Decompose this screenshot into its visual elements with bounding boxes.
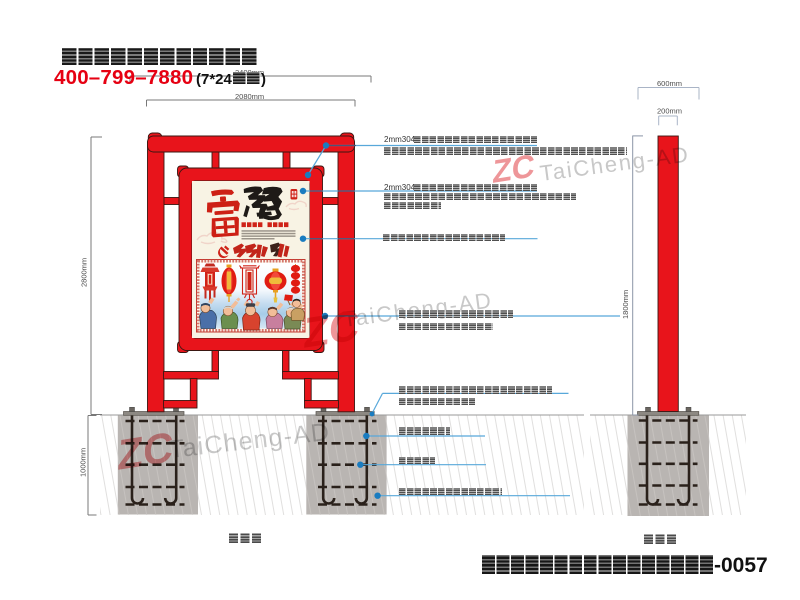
svg-text:2800mm: 2800mm bbox=[80, 258, 89, 287]
svg-text:1000mm: 1000mm bbox=[79, 448, 88, 477]
svg-text:600mm: 600mm bbox=[657, 79, 682, 88]
svg-text:2080mm: 2080mm bbox=[235, 92, 264, 101]
svg-text:ZC: ZC bbox=[117, 423, 175, 479]
svg-text:ZC: ZC bbox=[303, 301, 361, 357]
svg-text:200mm: 200mm bbox=[657, 107, 682, 116]
svg-text:1800mm: 1800mm bbox=[621, 290, 630, 319]
